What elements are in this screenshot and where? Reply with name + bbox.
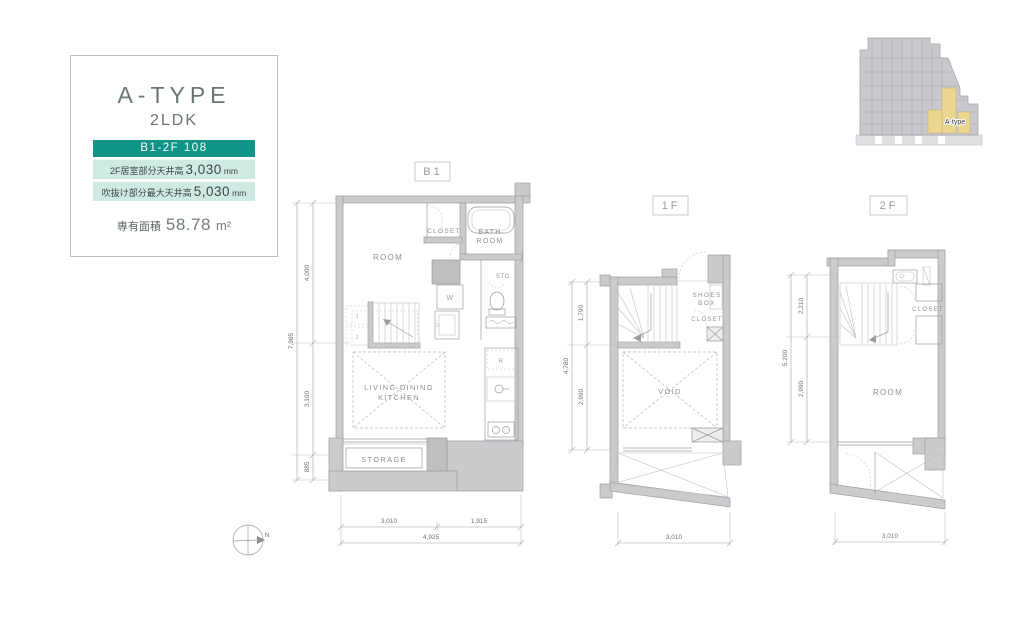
void-label: VOID (658, 387, 682, 396)
floorplan-drawing: A-type B1 BATH RO (0, 0, 1021, 621)
stairs-2f (840, 283, 897, 345)
north-compass: N (233, 525, 270, 555)
dim-b1-htotal: 4,925 (423, 534, 440, 541)
dim-2f-top: 2,210 (798, 297, 805, 314)
dimensions-b1: 4,000 3,100 885 7,985 3,010 1,915 4,925 (288, 200, 524, 546)
dim-2f-vtotal: 5,200 (782, 349, 789, 366)
dim-b1-vtotal: 7,985 (288, 332, 295, 349)
dim-1f-width: 3,010 (666, 534, 683, 541)
floorplan-b1: B1 BATH ROOM CLOSET (288, 162, 530, 546)
floorplan-page: A-TYPE 2LDK B1-2F 108 2F居室部分天井高 3,030 mm… (0, 0, 1021, 621)
bathroom-label: BATH (478, 229, 501, 236)
dim-2f-width: 3,010 (882, 533, 899, 540)
dim-b1-mid: 3,100 (304, 390, 311, 407)
shoes-box-label: BOX (698, 300, 716, 307)
a-type-highlight (942, 88, 956, 133)
stairs-1f (618, 285, 677, 342)
2f-floor-label: 2F (880, 200, 899, 212)
dim-b1-bottom: 885 (304, 461, 311, 472)
washer-label: W (446, 295, 453, 302)
1f-floor-label: 1F (662, 200, 681, 212)
room-label-2f: ROOM (873, 388, 903, 397)
stairs-b1 (373, 303, 419, 343)
north-label: N (265, 532, 270, 539)
floorplan-2f: 2F (782, 196, 948, 545)
j-box-label: J (355, 335, 358, 341)
bathroom-label: ROOM (477, 238, 504, 245)
closet-label: CLOSET (427, 228, 461, 235)
a-type-label: A-type (945, 119, 965, 126)
dim-1f-top: 1,790 (578, 304, 585, 321)
fridge-label: R (498, 358, 503, 365)
b1-floor-label: B1 (423, 166, 442, 178)
dim-1f-vtotal: 4,780 (563, 357, 570, 374)
shoes-box-label: SHOES (692, 292, 721, 299)
dim-b1-hleft: 3,010 (381, 518, 398, 525)
dim-1f-bottom: 2,990 (578, 388, 585, 405)
sto-label: STO. (496, 274, 512, 280)
closet-label-2f: CLOSET (912, 307, 944, 313)
kitchen-counter: R (485, 348, 518, 440)
j-box-label: J (355, 314, 358, 320)
a-type-highlight (928, 110, 942, 133)
storage-label: STORAGE (361, 455, 407, 464)
dim-2f-bottom: 2,990 (798, 380, 805, 397)
ldk-label: KITCHEN (378, 393, 420, 402)
floorplan-1f: 1F (563, 196, 741, 546)
room-label: ROOM (373, 253, 403, 262)
closet-label-1f: CLOSET (691, 317, 723, 323)
ldk-label: LIVING DINING (364, 383, 434, 392)
dim-b1-top: 4,000 (304, 264, 311, 281)
building-section-diagram: A-type (856, 38, 982, 145)
dim-b1-hright: 1,915 (471, 518, 488, 525)
